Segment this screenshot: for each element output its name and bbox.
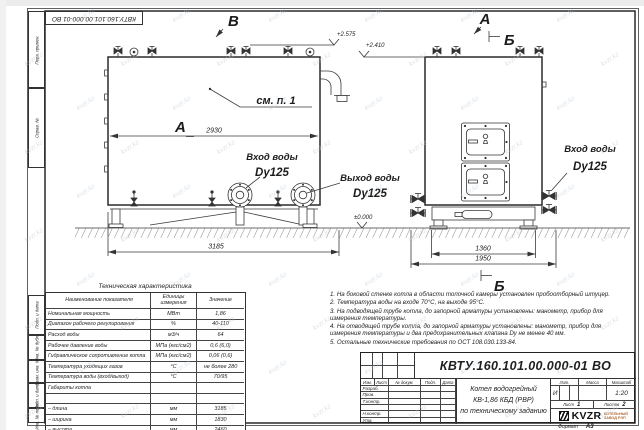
col-izm: Изм. [361,379,375,386]
kvzr-logo-icon [559,411,569,421]
spec-row-unit: МВт [151,309,197,320]
spec-row-name: Номинальная мощность [46,309,151,320]
spec-row-name: Рабочее давление воды [46,341,151,352]
note-item: 2. Температура воды на входе 70°С, на вы… [330,299,633,306]
frame-cell-perv-primen: Перв. примен. [28,11,45,88]
flue-outlet [320,71,350,102]
spec-row-unit: °С [151,373,197,384]
format-label: Формат А3 [558,424,638,430]
front-inlet-label: Вход воды [246,152,297,163]
spec-row-value: 3185 [197,404,244,415]
drain-valve-icon [275,190,281,206]
spec-row-name: – ширина [46,415,151,426]
spec-row-unit: м3/ч [151,330,197,341]
dim-1360-label: 1360 [475,246,491,253]
spec-row-name: – высота [46,426,151,430]
row-utv: Утв. [361,418,389,424]
spec-row-value: 2460 [197,426,244,430]
outlet-flange-icon [291,183,315,207]
scale-header: Масштаб [607,379,636,386]
spec-row-value [197,383,244,394]
spec-row-value: 1,86 [197,309,244,320]
revision-cells [361,353,414,379]
mass-value [579,386,607,400]
title-block-right: Лит. Масса Масштаб И 1:20 Лист 1 Листов … [551,379,636,424]
dim-2930-label: 2930 [205,128,222,135]
dim-1950-label: 1950 [475,256,491,263]
frame-cell-inv-podl: Инв. № подл. [28,408,45,423]
drawing-sheet: 2930 3185 [0,0,644,430]
spec-row-name: – длина [46,404,151,415]
document-name-line2: КВ-1,86 КБД (РВР) [473,396,534,407]
spec-row-value [197,394,244,405]
scale-value: 1:20 [607,386,636,400]
top-designation-text: КВТУ.160.101.00.000-01 ВО [52,15,136,22]
spec-table: Техническая характеристика Наименование … [45,282,245,430]
spec-row-value: 64 [197,330,244,341]
spec-row-value: 1830 [197,415,244,426]
frame-cell-podp-data-1: Подп. и дата [28,295,45,335]
elev-2410-label: +2.410 [366,43,385,49]
mass-header: Масса [579,379,607,386]
spec-col-value: Значение [197,293,244,309]
spec-row-unit [151,383,197,394]
view-a-front-label: А [174,119,186,136]
logo-subtitle-line2: ЗАВОД РЭП [604,416,628,420]
side-inlet-label: Вход воды [564,144,615,155]
note-item: 5. Остальные технические требования по О… [330,339,633,346]
frame-cell-sprav: Справ. № [28,88,45,168]
front-outlet-label: Выход воды [340,173,400,184]
top-designation-stamp: КВТУ.160.101.00.000-01 ВО [45,11,143,25]
spec-row-name: Гидравлическое сопротивление котла [46,351,151,362]
drain-valve-icon [209,190,215,206]
col-data: Дата [441,379,456,386]
lit-header: Лит. [551,379,579,386]
signature-block: Изм. Лист № докум. Подп. Дата Разраб. Пр… [361,379,456,424]
spec-row-unit: МПа (кгс/см2) [151,341,197,352]
title-block: КВТУ.160.101.00.000-01 ВО Изм. Лист № до… [360,352,635,423]
spec-row-unit: МПа (кгс/см2) [151,351,197,362]
spec-row-name: Диапазон рабочего регулирования [46,320,151,331]
sheet-cell: Лист 1 [551,401,594,408]
front-inlet-size: Dy125 [255,167,289,179]
document-name: Котел водогрейный КВ-1,86 КБД (РВР) по т… [456,379,551,424]
spec-row-value: 0,06 (0,6) [197,351,244,362]
page-margin-left [0,0,6,430]
lit-value: И [551,386,560,400]
ground-line [75,228,630,238]
upper-door-icon [462,123,510,161]
spec-row-name: Габариты котла [46,383,151,394]
section-b-top-label: Б [504,32,515,49]
company-logo: KVZR КОТЕЛЬНЫЙ ЗАВОД РЭП [551,409,636,423]
elev-zero-label: ±0.000 [354,215,373,221]
spec-row-unit: мм [151,404,197,415]
col-list: Лист [375,379,389,386]
document-designation: КВТУ.160.101.00.000-01 ВО [414,353,636,379]
dim-3185-label: 3185 [208,244,224,251]
spec-col-name: Наименование показателя [46,293,151,309]
note-item: 3. На подводящей трубе котла, до запорно… [330,308,633,323]
side-inlet-size: Dy125 [573,161,607,173]
kvzr-logo-text: KVZR [572,410,602,422]
note-item: 4. На отводящей трубе котла, до запорной… [330,323,633,338]
lower-door-icon [462,163,510,201]
see-note-label: см. п. 1 [256,95,295,107]
frame-cell-inv-dubl: Инв. № дубл. [28,335,45,360]
spec-table-grid: Наименование показателя Единицы измерени… [45,292,246,430]
document-name-line3: по техническому заданию [460,407,547,418]
sheets-cell: Листов 2 [594,401,637,408]
note-item: 1. На боковой стенке котла в области топ… [330,291,633,298]
spec-table-title: Техническая характеристика [45,282,245,292]
elev-2575-label: +2.575 [337,32,356,38]
document-name-line1: Котел водогрейный [470,385,537,396]
spec-row-unit: % [151,320,197,331]
spec-row-unit: мм [151,415,197,426]
page-margin-top [0,0,644,6]
spec-row-name: Расход воды [46,330,151,341]
top-valve-icons [433,47,543,58]
notes: 1. На боковой стенке котла в области топ… [330,291,633,347]
view-a-side-label: А [479,11,491,28]
side-base [430,207,537,229]
spec-row-value: 0,6 (6,0) [197,341,244,352]
front-outlet-size: Dy125 [353,188,387,200]
spec-row-value: 70/95 [197,373,244,384]
spec-row-name [46,394,151,405]
spec-row-unit: мм [151,426,197,430]
drain-valve-icon [131,190,137,206]
spec-row-name: Температура уходящих газов [46,362,151,373]
spec-row-unit [151,394,197,405]
view-b-label: В [228,13,239,30]
spec-row-value: 40-110 [197,320,244,331]
spec-col-unit: Единицы измерения [151,293,197,309]
top-valve-icons [114,47,314,58]
front-base [109,207,318,228]
col-podp: Подп. [421,379,441,386]
spec-row-unit: °С [151,362,197,373]
frame-cell-vzam-inv: Взам. инв. № [28,360,45,383]
spec-row-value: не более 280 [197,362,244,373]
spec-row-name: Температура воды (вход/выход) [46,373,151,384]
col-ndok: № докум. [389,379,421,386]
front-view: 2930 3185 [105,47,350,257]
